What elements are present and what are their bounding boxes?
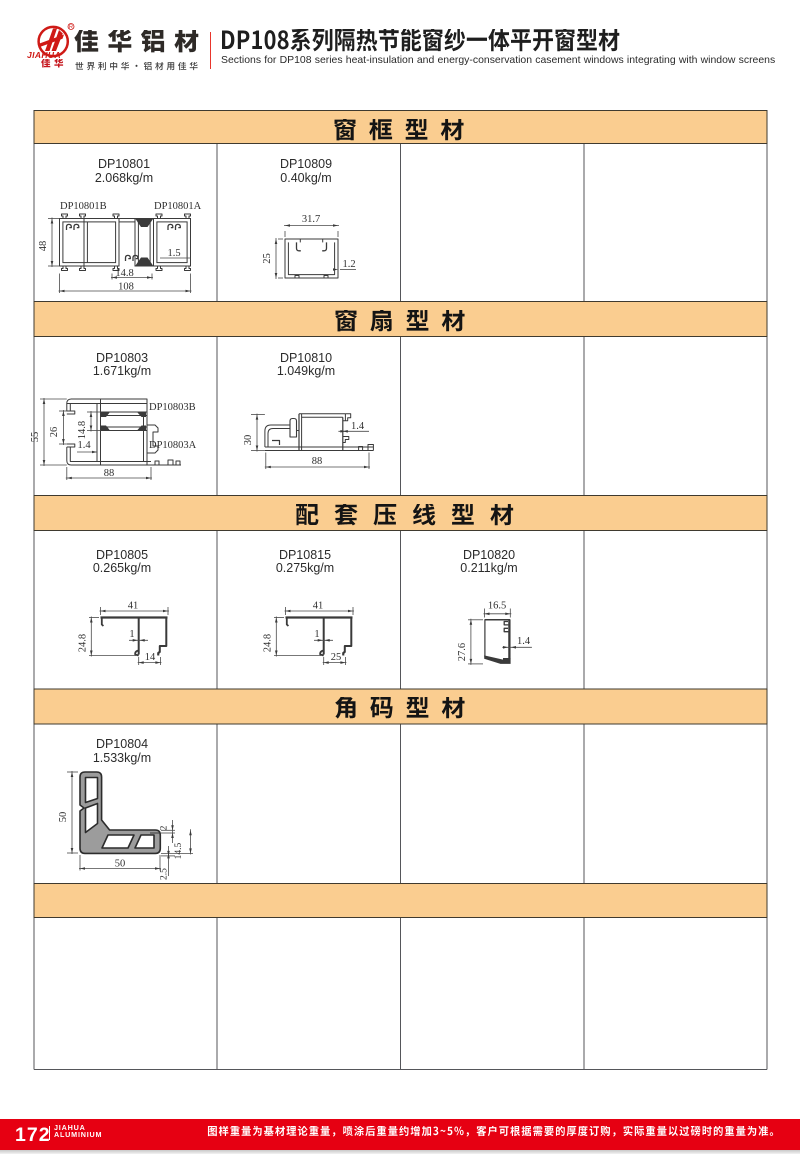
svg-text:R: R	[69, 25, 73, 31]
svg-text:55: 55	[30, 432, 41, 443]
svg-text:14.8: 14.8	[77, 421, 88, 439]
svg-text:1.4: 1.4	[77, 440, 91, 451]
svg-text:14.8: 14.8	[115, 268, 133, 279]
svg-text:50: 50	[115, 859, 126, 870]
svg-text:2: 2	[160, 825, 170, 830]
svg-text:41: 41	[128, 601, 139, 612]
svg-text:2.5: 2.5	[160, 868, 170, 880]
svg-text:41: 41	[313, 601, 324, 612]
svg-text:16.5: 16.5	[488, 601, 506, 612]
svg-text:88: 88	[312, 456, 323, 467]
svg-text:1.4: 1.4	[517, 636, 531, 647]
svg-text:108: 108	[118, 282, 134, 293]
svg-text:1.4: 1.4	[351, 421, 365, 432]
svg-text:30: 30	[243, 435, 254, 446]
svg-text:1.2: 1.2	[342, 259, 355, 270]
svg-text:1: 1	[129, 629, 134, 640]
svg-text:14.5: 14.5	[174, 842, 184, 859]
svg-text:25: 25	[262, 253, 273, 264]
svg-text:88: 88	[104, 468, 115, 479]
svg-text:48: 48	[38, 241, 49, 252]
svg-text:50: 50	[58, 812, 69, 823]
svg-text:14: 14	[145, 652, 156, 663]
svg-text:27.6: 27.6	[457, 643, 468, 661]
svg-text:31.7: 31.7	[302, 214, 320, 225]
svg-text:24.8: 24.8	[78, 634, 89, 652]
svg-text:24.8: 24.8	[263, 634, 274, 652]
svg-text:1: 1	[314, 629, 319, 640]
svg-text:25: 25	[331, 652, 342, 663]
svg-text:1.5: 1.5	[167, 248, 180, 259]
svg-text:26: 26	[49, 427, 60, 438]
